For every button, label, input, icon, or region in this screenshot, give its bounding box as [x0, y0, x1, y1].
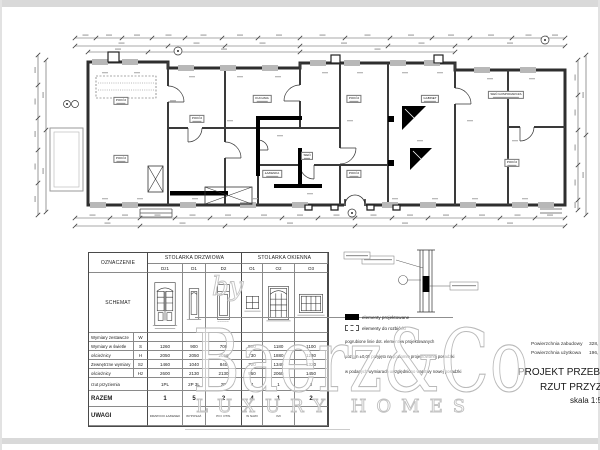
schedule-cell-H-D2: 2050: [206, 351, 242, 360]
schedule-schemat-label: SCHEMAT: [89, 273, 148, 333]
schedule-cell-S-O2: 1180: [263, 342, 295, 351]
area-built-label: Powierzchnia zabudowy: [531, 342, 582, 347]
room-area-line: [266, 176, 278, 177]
schedule-col-O1: O1: [242, 264, 263, 273]
project-title: PROJEKT PRZEBUDOWY: [518, 367, 600, 378]
schedule-cell-Sz-Dz1: 1460: [148, 360, 183, 369]
door-D1-schematic-icon: [183, 273, 205, 333]
schedule-razem-Dz1: 1: [148, 391, 183, 407]
area-usable-label: Powierzchnia użytkowa: [531, 351, 581, 356]
area-usable-value: 196,: [589, 351, 598, 356]
schedule-uwagi-D2: PO I OTW.: [206, 407, 242, 426]
schedule-cell-Sz-O3: 1320: [295, 360, 328, 369]
schedule-row-sym: S: [134, 342, 148, 351]
room-area-line: [193, 121, 202, 122]
note-paragraph: poziom ±0,00 przyjęto na poziomie projek…: [345, 354, 463, 359]
schedule-cell-rzut-D2: 2P: [206, 378, 242, 391]
room-label: POKÓJ: [189, 115, 204, 123]
room-label: POKÓJ: [346, 170, 361, 178]
wall-section-detail: [344, 250, 478, 312]
building-outline: [88, 62, 565, 205]
schedule-cell-W-O1: [242, 333, 263, 342]
schedule-cell-Sz-D1: 1040: [183, 360, 206, 369]
schedule-row-label: ościeżnicy: [89, 351, 134, 360]
legend-swatch-solid: [345, 314, 359, 320]
schedule-group-windows: STOLARKA OKIENNA: [242, 253, 328, 264]
schedule-cell-rzut-Dz1: 1PL: [148, 378, 183, 391]
area-built-value: 328,: [589, 342, 598, 347]
schedule-row-sym: Hz: [134, 369, 148, 378]
room-area-line: [350, 101, 359, 102]
schedule-cell-rzut-O1: 4: [242, 378, 263, 391]
room-label: POKÓJ: [504, 159, 519, 167]
schedule-cell-W-Dz1: [148, 333, 183, 342]
window-O3-schematic-icon: [295, 273, 327, 333]
schedule-razem-D2: 2: [206, 391, 242, 407]
schedule-cell-W-O2: [263, 333, 295, 342]
schemat-icon-O1: [242, 273, 263, 333]
legend-swatch-dashed: [345, 325, 359, 331]
schedule-cell-Hz-D1: 2130: [183, 369, 206, 378]
schedule-cell-S-O3: 1100: [295, 342, 328, 351]
schedule-row-label: ościeżnicy: [89, 369, 134, 378]
schedule-cell-rzut-D1: 2P 3L: [183, 378, 206, 391]
schedule-uwagi-O1: W NAWI: [242, 407, 263, 426]
schedule-uwagi-O2: IMI: [263, 407, 295, 426]
legend-item: elementy do rozbiórki: [345, 325, 406, 331]
schedule-uwagi-Dz1: DRZWI DO ŁAZIENEK: [148, 407, 183, 426]
schedule-row-label: rzut przyziemia: [89, 378, 148, 391]
window-O1-schematic-icon: [242, 273, 262, 333]
room-area-line: [350, 176, 359, 177]
porch: [50, 128, 83, 191]
door-Dz1-schematic-icon: [148, 273, 182, 333]
legend-label: elementy do rozbiórki: [362, 326, 406, 331]
door-D2-schematic-icon: [206, 273, 241, 333]
watermark-underline: [185, 429, 350, 430]
schedule-razem-label: RAZEM: [89, 391, 148, 407]
schedule-col-D2: D2: [206, 264, 242, 273]
schedule-cell-Sz-D2: 840: [206, 360, 242, 369]
schedule-razem-O3: 2: [295, 391, 328, 407]
schedule-col-D1: D1: [183, 264, 206, 273]
legend-label: elementy projektowane: [362, 315, 409, 320]
room-label: POKÓJ: [346, 95, 361, 103]
note-paragraph: w podanych wymiarach uwzględniono warstw…: [345, 369, 463, 374]
room-area-line: [304, 158, 310, 159]
schedule-cell-rzut-O2: 1: [263, 378, 295, 391]
schemat-icon-D1: [183, 273, 206, 333]
schemat-icon-O2: [263, 273, 295, 333]
schedule-cell-Hz-D2: 2130: [206, 369, 242, 378]
schemat-icon-Dz1: [148, 273, 183, 333]
area-built-line: Powierzchnia zabudowy 328,: [531, 342, 582, 347]
schedule-cell-Hz-O2: 2060: [263, 369, 295, 378]
scale-label: skala 1:50: [570, 396, 600, 405]
schedule-cell-H-D1: 2050: [183, 351, 206, 360]
room-label: GABINET: [421, 95, 439, 103]
schedule-row-sym: Sz: [134, 360, 148, 369]
schedule-uwagi-label: UWAGI: [89, 407, 148, 426]
schedule-cell-Sz-O1: 720: [242, 360, 263, 369]
schedule-row-label: Zewnętrzne wymiary: [89, 360, 134, 369]
room-area-line: [508, 165, 517, 166]
room-label: POKÓJ: [113, 155, 128, 163]
schedule-razem-D1: 5: [183, 391, 206, 407]
schedule-cell-Hz-O3: 1450: [295, 369, 328, 378]
schedule-cell-Sz-O2: 1340: [263, 360, 295, 369]
room-area-line: [117, 103, 126, 104]
schedule-cell-W-D1: [183, 333, 206, 342]
room-label: SIEŃ: [301, 152, 313, 160]
room-label: KUCHNIA: [253, 95, 272, 103]
area-usable-line: Powierzchnia użytkowa 196,: [531, 351, 581, 356]
schedule-group-doors: STOLARKA DRZWIOWA: [148, 253, 242, 264]
schedule-cell-S-Dz1: 1260: [148, 342, 183, 351]
schedule-cell-H-O1: 730: [242, 351, 263, 360]
schedule-col-O3: O3: [295, 264, 328, 273]
schedule-row-label: Wymiary w świetle: [89, 342, 134, 351]
schedule-cell-Hz-O1: 950: [242, 369, 263, 378]
drawing-sheet: POKÓJPOKÓJPOKÓJKUCHNIAŁAZIENKASIEŃPOKÓJP…: [0, 0, 600, 450]
schedule-cell-H-Dz1: 2050: [148, 351, 183, 360]
schemat-icon-D2: [206, 273, 242, 333]
schedule-cell-H-O3: 1230: [295, 351, 328, 360]
legend-item: elementy projektowane: [345, 314, 409, 320]
room-area-line: [117, 161, 126, 162]
schedule-corner: OZNACZENIE: [89, 253, 148, 273]
schedule-cell-S-D1: 900: [183, 342, 206, 351]
schedule-row-sym: W: [134, 333, 148, 342]
schedule-cell-H-O2: 1880: [263, 351, 295, 360]
joinery-schedule-table: OZNACZENIESTOLARKA DRZWIOWASTOLARKA OKIE…: [88, 252, 329, 427]
room-area-line: [256, 101, 267, 102]
schedule-uwagi-D1: WYPOSAŻ.: [183, 407, 206, 426]
schedule-col-Dz1: Dz1: [148, 264, 183, 273]
schedule-razem-O2: 1: [263, 391, 295, 407]
schedule-cell-S-D2: 700: [206, 342, 242, 351]
schedule-cell-W-O3: [295, 333, 328, 342]
schemat-icon-O3: [295, 273, 328, 333]
window-O2-schematic-icon: [263, 273, 294, 333]
room-area-line: [493, 97, 519, 98]
schedule-col-O2: O2: [263, 264, 295, 273]
schedule-row-label: Wymiary zestawcze: [89, 333, 134, 342]
room-label: POKÓJ: [113, 97, 128, 105]
room-label: SIEŃ GOSPODARCZA: [488, 91, 524, 99]
schedule-cell-rzut-O3: 2: [295, 378, 328, 391]
schedule-cell-S-O1: 500: [242, 342, 263, 351]
schedule-row-sym: H: [134, 351, 148, 360]
note-paragraph: pogrubione linie dot. elementów projekto…: [345, 339, 463, 344]
drawing-title: RZUT PRZYZIEMIA: [540, 382, 600, 393]
legend-leader-line: [195, 317, 453, 318]
room-area-line: [424, 101, 435, 102]
schedule-cell-Hz-Dz1: 2600: [148, 369, 183, 378]
schedule-cell-W-D2: [206, 333, 242, 342]
schedule-uwagi-O3: [295, 407, 328, 426]
room-label: ŁAZIENKA: [262, 170, 282, 178]
schedule-razem-O1: 4: [242, 391, 263, 407]
